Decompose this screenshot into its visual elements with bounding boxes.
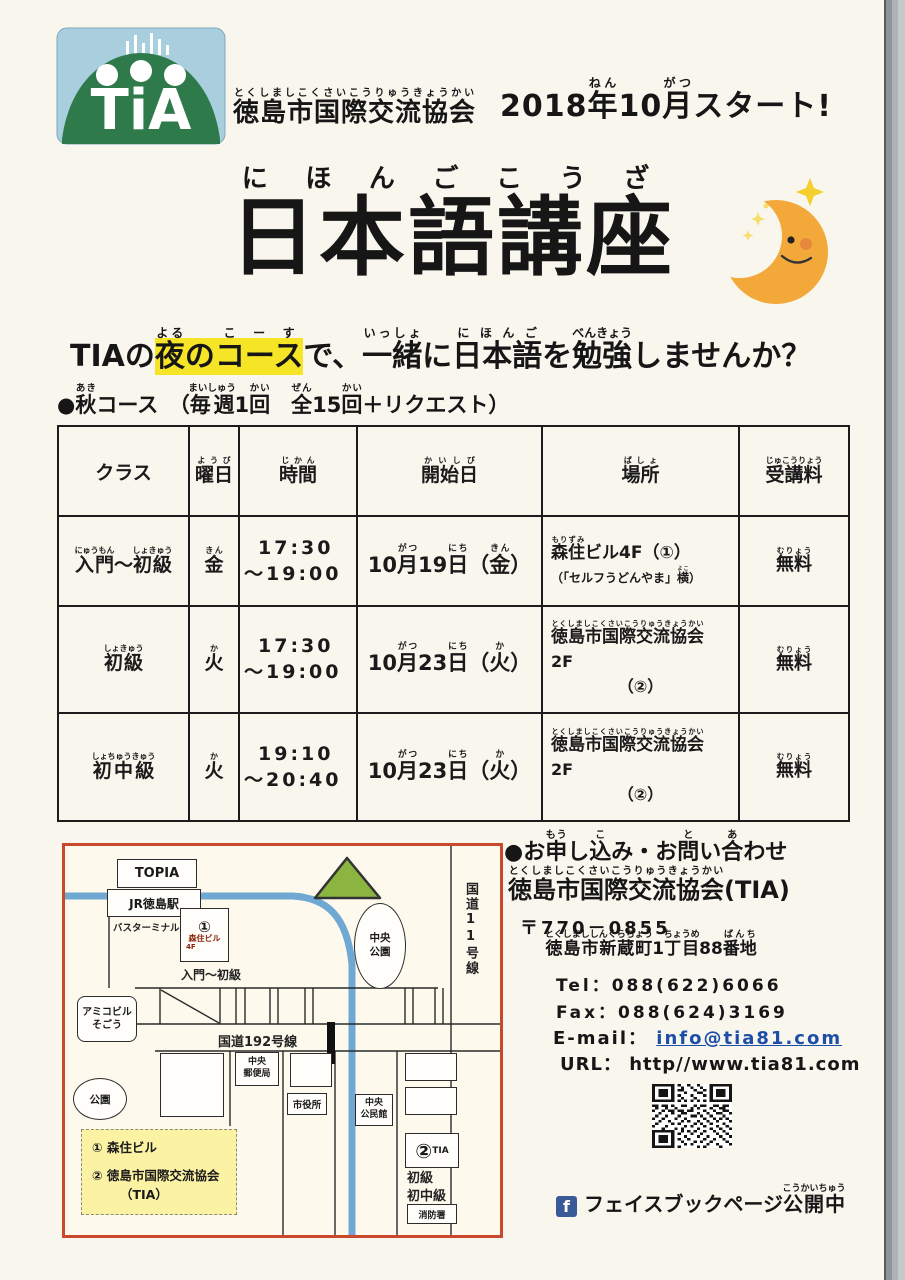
svg-text:TiA: TiA — [91, 78, 192, 143]
place: 森住もりずみビル4F（①） （「セルフうどんやま」横よこ） — [542, 516, 739, 606]
access-map: TOPIA JR徳島駅 バスターミナル ① 森住ビル 4F 入門～初級 アミコビ… — [62, 843, 503, 1238]
time-end: ～20:40 — [240, 765, 356, 792]
tia-logo-graphic: TiA — [56, 27, 226, 145]
facebook-icon: f — [556, 1196, 577, 1217]
fee: 無料むりょう — [739, 516, 849, 606]
url-value: http//www.tia81.com — [629, 1054, 860, 1075]
time-end: ～19:00 — [240, 559, 356, 586]
url-label: URL： — [560, 1054, 622, 1075]
start-date-cell: 10月がつ19日にち（金きん） — [357, 516, 542, 606]
class-name: 初級しょきゅう — [58, 606, 189, 713]
place-line3: （②） — [551, 783, 730, 808]
map-legend: ① 森住ビル ② 徳島市国際交流協会 （TIA） — [81, 1129, 237, 1215]
fee: 無料むりょう — [739, 606, 849, 713]
start-date-cell: 10月がつ23日にち（火か） — [357, 606, 542, 713]
col-day: 曜日ようび — [189, 426, 239, 516]
time: 17:30 ～19:00 — [239, 606, 357, 713]
col-fee: 受講料じゅこうりょう — [739, 426, 849, 516]
moon-eye — [787, 236, 794, 243]
map-post-office: 中央郵便局 — [235, 1052, 279, 1086]
table-header-row: クラス 曜日ようび 時間じかん 開始日かいしび 場所ばしょ 受講料じゅこうりょう — [58, 426, 849, 516]
people-icon: TiA — [91, 60, 192, 143]
qr-code — [652, 1084, 732, 1148]
url-line: URL： http//www.tia81.com — [560, 1050, 860, 1076]
map-building2: ② TIA — [405, 1133, 459, 1168]
col-time: 時間じかん — [239, 426, 357, 516]
map-park: 公園 — [73, 1078, 127, 1120]
start-date: 2018年ねん10月がつスタート! — [500, 76, 832, 125]
map-topia: TOPIA — [117, 859, 197, 888]
map-bus-terminal: バスターミナル — [113, 920, 180, 934]
map-community-center: 中央公民館 — [355, 1094, 393, 1126]
col-class: クラス — [58, 426, 189, 516]
time-end: ～19:00 — [240, 657, 356, 684]
map-block — [290, 1053, 332, 1087]
time: 19:10 ～20:40 — [239, 713, 357, 821]
place-line2: （「セルフうどんやま」横よこ） — [551, 566, 730, 588]
moon-illustration — [698, 176, 848, 311]
place-line1: 徳島市国際交流協会とくしましこくさいこうりゅうきょうかい — [551, 619, 730, 650]
col-startdate: 開始日かいしび — [357, 426, 542, 516]
map-amico: アミコビルそごう — [77, 996, 137, 1042]
day: 火か — [189, 606, 239, 713]
table-row: 初中級しょちゅうきゅう 火か 19:10 ～20:40 10月がつ23日にち（火… — [58, 713, 849, 821]
place: 徳島市国際交流協会とくしましこくさいこうりゅうきょうかい 2F （②） — [542, 606, 739, 713]
map-central-park: 中央公園 — [354, 903, 406, 989]
class-name: 入門にゅうもん～初級しょきゅう — [58, 516, 189, 606]
moon-icon — [698, 176, 848, 311]
day: 金きん — [189, 516, 239, 606]
legend-item2b: （TIA） — [92, 1186, 236, 1205]
map-building2-classes: 初級初中級 — [407, 1170, 446, 1205]
star-icon — [796, 178, 824, 206]
contact-heading: ●お申もうし込こみ・お問とい合あわせ — [504, 830, 787, 866]
legend-item1: ① 森住ビル — [92, 1139, 236, 1158]
map-block — [405, 1087, 457, 1115]
qr-code-graphic — [652, 1084, 732, 1148]
map-building1-class: 入門～初級 — [181, 966, 241, 983]
map-city-hall: 市役所 — [287, 1093, 327, 1115]
legend-item2: ② 徳島市国際交流協会 — [92, 1167, 236, 1186]
email-line: E-mail： info@tia81.com — [553, 1024, 842, 1050]
moon-blush — [800, 238, 812, 250]
map-route192: 国道192号線 — [218, 1031, 297, 1050]
time-start: 17:30 — [240, 537, 356, 559]
time: 17:30 ～19:00 — [239, 516, 357, 606]
course-heading: ●秋あきコース （毎週まいしゅう1回かい 全ぜん15回かい＋リクエスト） — [57, 383, 509, 419]
map-building1: ① 森住ビル 4F — [180, 908, 229, 962]
class-name: 初中級しょちゅうきゅう — [58, 713, 189, 821]
scan-edge — [884, 0, 905, 1280]
org-name: 徳島市国際交流協会とくしましこくさいこうりゅうきょうかい — [233, 88, 476, 129]
contact-org: 徳島市国際交流協会とくしましこくさいこうりゅうきょうかい(TIA) — [508, 866, 790, 905]
time-start: 17:30 — [240, 635, 356, 657]
map-fire-station: 消防署 — [407, 1204, 457, 1224]
day: 火か — [189, 713, 239, 821]
place: 徳島市国際交流協会とくしましこくさいこうりゅうきょうかい 2F （②） — [542, 713, 739, 821]
course-table: クラス 曜日ようび 時間じかん 開始日かいしび 場所ばしょ 受講料じゅこうりょう… — [57, 425, 850, 822]
flyer-page: TiA 徳島市国際交流協会とくしましこくさいこうりゅうきょうかい 2018年ねん… — [0, 0, 905, 1280]
time-start: 19:10 — [240, 743, 356, 765]
address: 徳島市新蔵町とくしまししんくらちょう1丁目ちょうめ88番地ばんち — [545, 930, 757, 959]
email-label: E-mail： — [553, 1028, 648, 1049]
phone-number: Tel：088(622)6066 — [556, 971, 782, 996]
email-link[interactable]: info@tia81.com — [656, 1028, 842, 1049]
map-block — [405, 1053, 457, 1081]
facebook-note: フェイスブックページ公開中こうかいちゅう — [584, 1184, 846, 1217]
place-line3: （②） — [551, 675, 730, 700]
tia-logo: TiA — [56, 27, 226, 145]
map-block — [160, 1053, 224, 1117]
fax-number: Fax：088(624)3169 — [556, 998, 788, 1023]
park-triangle — [315, 858, 380, 898]
tagline: TIAの夜よるのコースこーすで、一緒いっしょに日本語にほんごを勉強べんきょうしま… — [70, 326, 811, 375]
start-date-cell: 10月がつ23日にち（火か） — [357, 713, 542, 821]
place-line1: 徳島市国際交流協会とくしましこくさいこうりゅうきょうかい — [551, 727, 730, 758]
table-row: 初級しょきゅう 火か 17:30 ～19:00 10月がつ23日にち（火か） 徳… — [58, 606, 849, 713]
map-route11: 国道11号線 — [461, 882, 480, 976]
place-line2: 2F — [551, 758, 730, 783]
table-row: 入門にゅうもん～初級しょきゅう 金きん 17:30 ～19:00 10月がつ19… — [58, 516, 849, 606]
col-place: 場所ばしょ — [542, 426, 739, 516]
fee: 無料むりょう — [739, 713, 849, 821]
place-line1: 森住もりずみビル4F（①） — [551, 535, 730, 566]
place-line2: 2F — [551, 650, 730, 675]
